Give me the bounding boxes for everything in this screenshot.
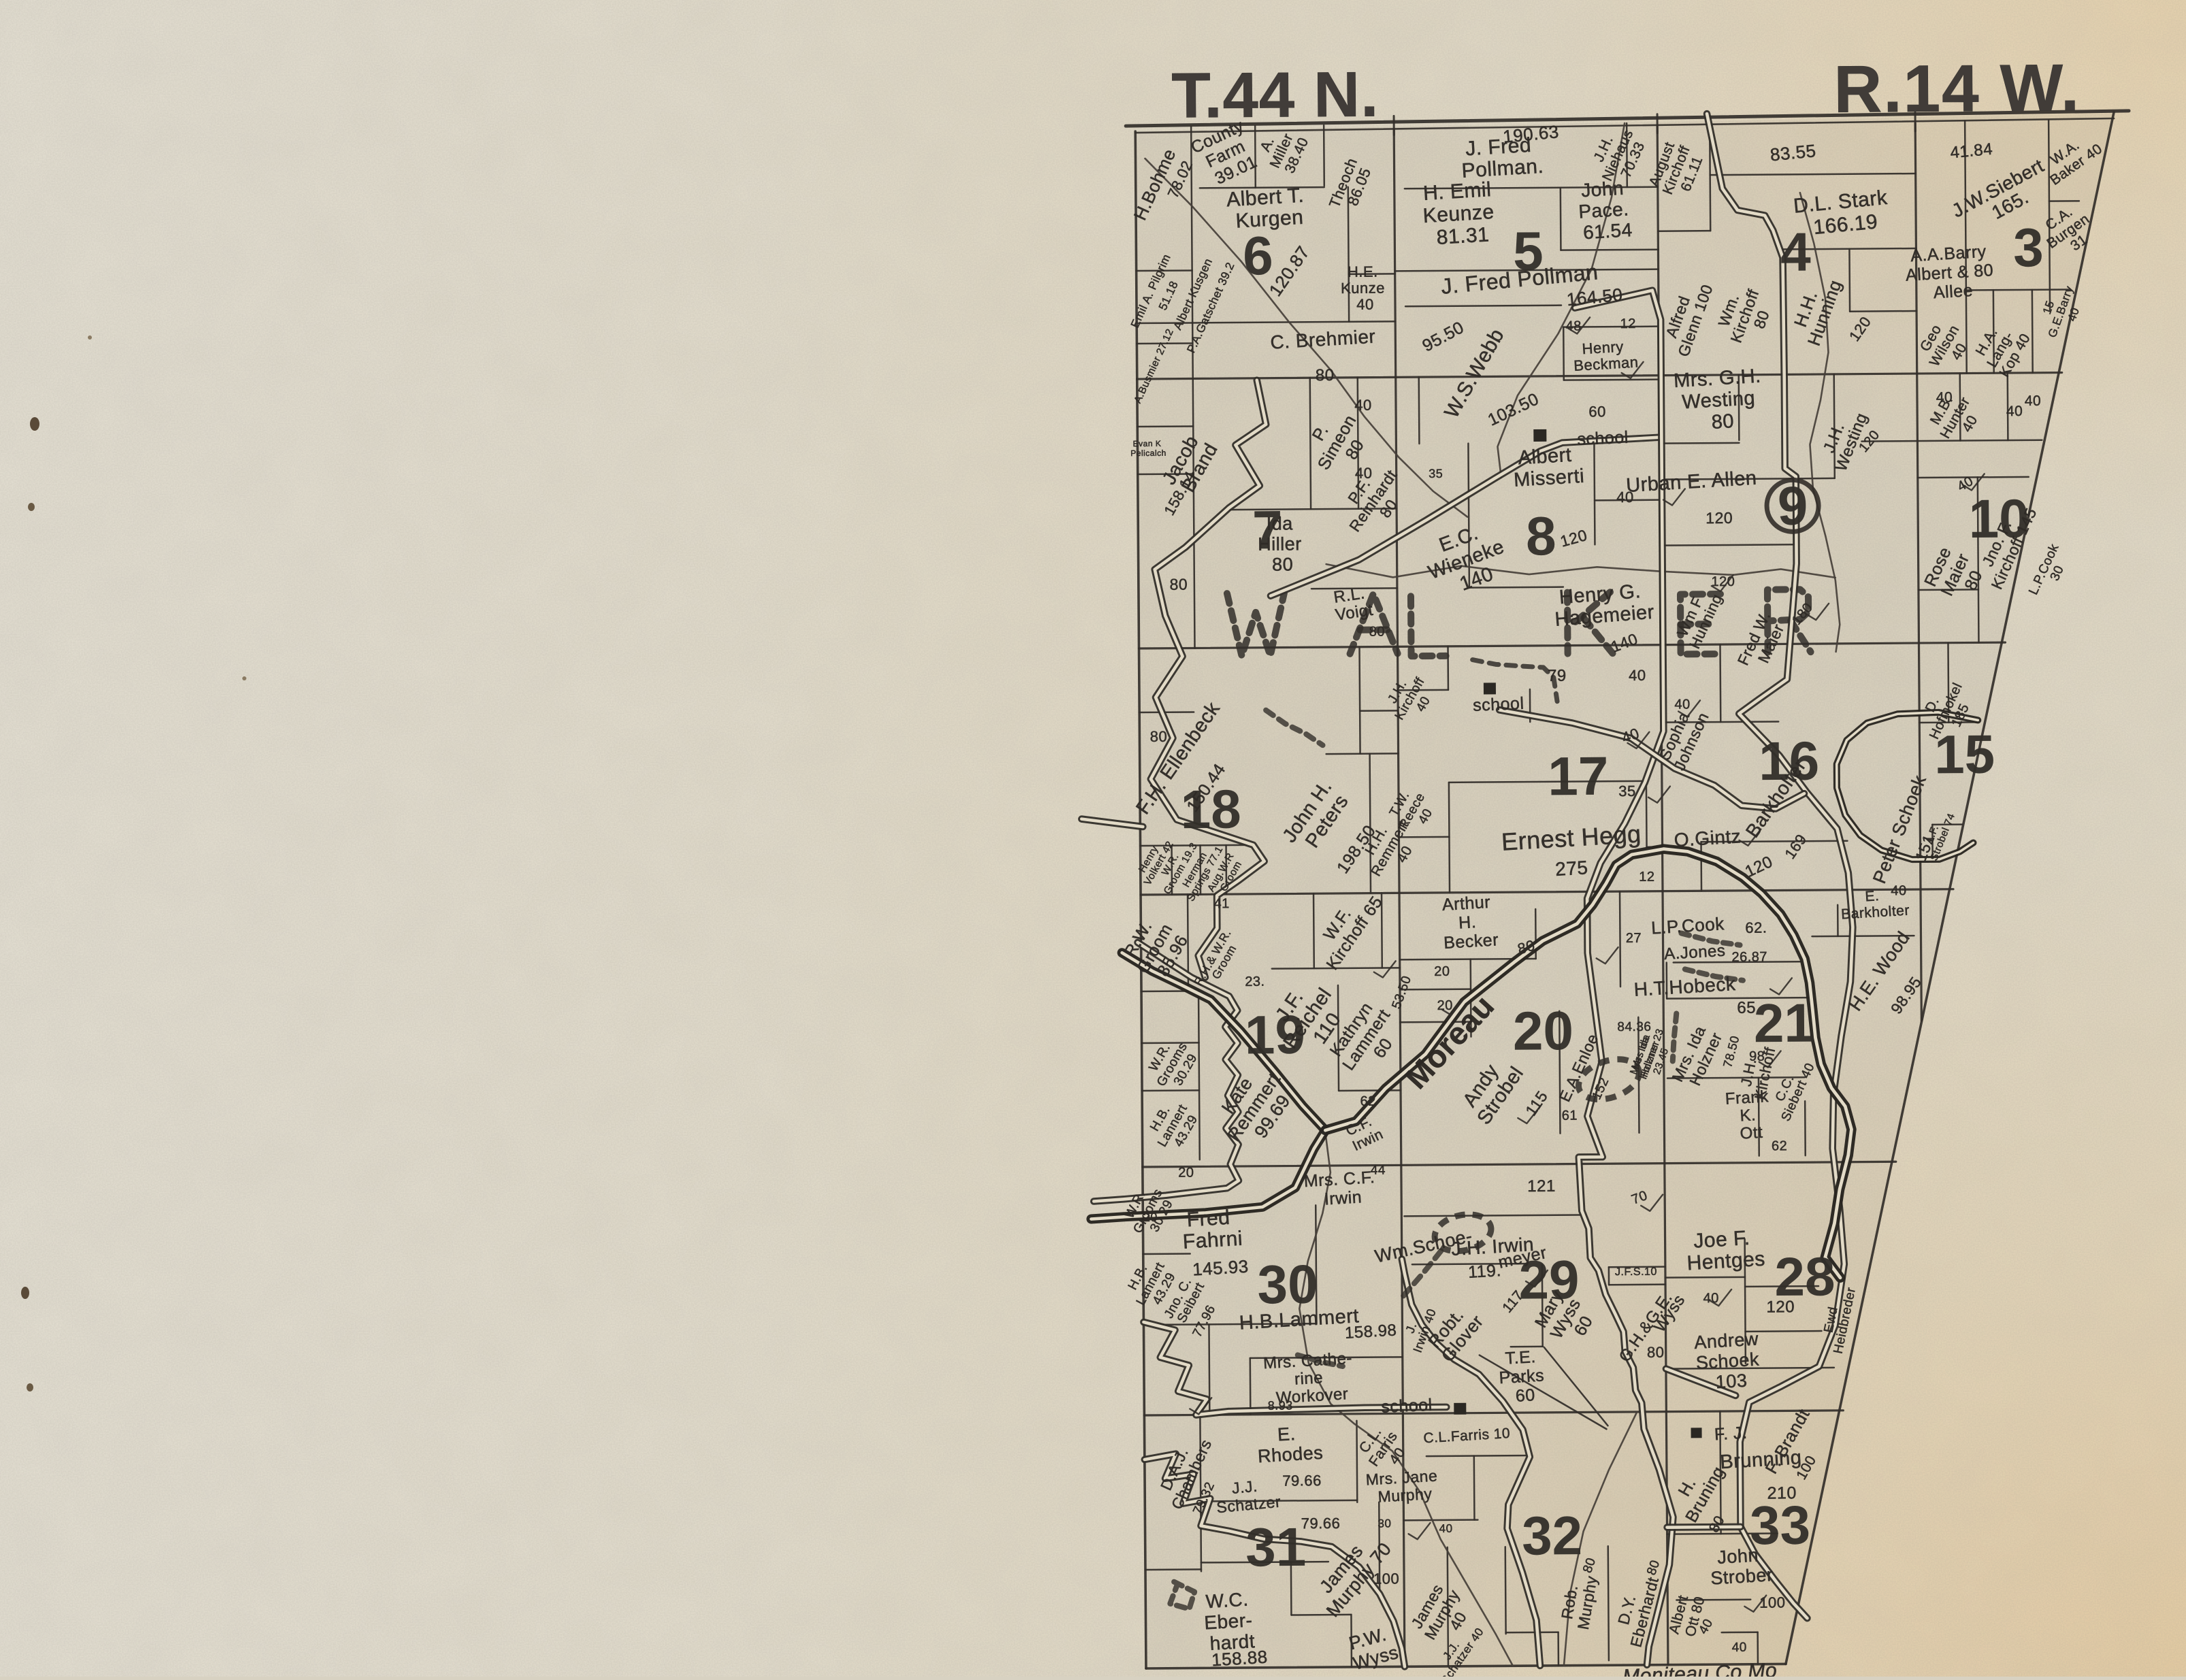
svg-text:158.88: 158.88 (1211, 1647, 1268, 1670)
svg-text:21: 21 (1754, 993, 1815, 1054)
svg-text:20: 20 (1143, 1210, 1158, 1224)
svg-text:school: school (1381, 1396, 1433, 1417)
svg-text:3: 3 (2013, 217, 2044, 278)
svg-text:275: 275 (1554, 857, 1588, 880)
svg-text:Albert T. Kurgen: Albert T. Kurgen (1226, 184, 1311, 233)
svg-text:80: 80 (1369, 625, 1385, 640)
svg-text:79.66: 79.66 (1282, 1472, 1322, 1489)
svg-text:119.: 119. (1467, 1261, 1501, 1282)
svg-text:23.: 23. (1245, 974, 1265, 989)
svg-text:60: 60 (1588, 403, 1606, 420)
svg-text:W.C. Eber- hardt: W.C. Eber- hardt (1203, 1588, 1260, 1655)
svg-text:R.L. Voigt: R.L. Voigt (1331, 583, 1374, 625)
svg-text:17: 17 (1548, 746, 1609, 807)
svg-text:20: 20 (1434, 964, 1450, 979)
svg-text:12: 12 (1620, 316, 1635, 331)
svg-text:100: 100 (1373, 1570, 1399, 1587)
svg-text:40: 40 (1616, 489, 1634, 506)
svg-text:62: 62 (1360, 1094, 1375, 1109)
svg-text:80: 80 (1169, 576, 1188, 593)
svg-text:F. J.: F. J. (1714, 1423, 1748, 1445)
svg-text:30: 30 (1257, 1254, 1318, 1315)
svg-text:158.98: 158.98 (1344, 1321, 1397, 1342)
svg-text:Evan K Pelicalch: Evan K Pelicalch (1130, 439, 1167, 458)
svg-text:120: 120 (1706, 509, 1733, 527)
svg-text:30: 30 (1377, 1517, 1391, 1530)
svg-text:R.14 W.: R.14 W. (1833, 50, 2081, 127)
svg-text:79.66: 79.66 (1301, 1515, 1341, 1532)
svg-text:40: 40 (1891, 883, 1906, 898)
svg-text:35: 35 (1618, 783, 1636, 800)
svg-text:O.Gintz: O.Gintz (1674, 825, 1742, 851)
svg-text:79: 79 (1548, 667, 1567, 685)
svg-text:Joe F. Hentges: Joe F. Hentges (1685, 1226, 1766, 1275)
svg-text:80: 80 (1150, 728, 1168, 745)
svg-text:80: 80 (1647, 1344, 1665, 1361)
svg-text:L.P.Cook: L.P.Cook (1650, 913, 1725, 938)
svg-text:27: 27 (1626, 931, 1642, 946)
svg-text:100: 100 (1759, 1594, 1785, 1611)
svg-text:8.93: 8.93 (1268, 1398, 1293, 1412)
svg-text:20: 20 (1437, 998, 1452, 1013)
svg-text:35: 35 (1429, 467, 1443, 480)
svg-text:62: 62 (1772, 1138, 1787, 1153)
svg-text:83.55: 83.55 (1769, 140, 1817, 165)
svg-text:J. Fred Pollman.: J. Fred Pollman. (1460, 133, 1544, 182)
svg-text:40: 40 (1439, 1522, 1453, 1535)
svg-text:40: 40 (1703, 1291, 1718, 1306)
svg-text:40: 40 (1674, 697, 1690, 712)
svg-text:80: 80 (1316, 366, 1335, 384)
svg-text:41: 41 (1213, 896, 1229, 911)
svg-text:Albert Misserti: Albert Misserti (1512, 444, 1585, 491)
svg-text:61: 61 (1562, 1108, 1578, 1123)
svg-text:6: 6 (1243, 225, 1273, 286)
svg-text:65: 65 (1737, 999, 1756, 1017)
svg-text:school: school (1577, 428, 1629, 449)
svg-text:40: 40 (2006, 403, 2023, 419)
svg-text:121: 121 (1527, 1177, 1556, 1196)
svg-text:Henry G. Hagemeier: Henry G. Hagemeier (1552, 580, 1655, 631)
svg-text:31: 31 (1245, 1517, 1307, 1578)
svg-text:44: 44 (1371, 1164, 1386, 1178)
svg-text:school: school (1473, 694, 1524, 715)
svg-text:John Pace. 61.54: John Pace. 61.54 (1577, 177, 1637, 244)
svg-text:40: 40 (2025, 393, 2042, 409)
svg-text:J.F.S.10: J.F.S.10 (1615, 1266, 1657, 1278)
svg-text:120: 120 (1711, 574, 1735, 589)
svg-text:20: 20 (1178, 1165, 1194, 1180)
svg-text:8: 8 (1526, 506, 1556, 566)
svg-text:210: 210 (1767, 1483, 1796, 1502)
svg-text:40: 40 (1629, 667, 1646, 684)
svg-text:26.87: 26.87 (1731, 950, 1767, 965)
svg-text:T.44 N.: T.44 N. (1171, 59, 1380, 131)
svg-text:62.: 62. (1745, 919, 1767, 936)
svg-text:145.93: 145.93 (1192, 1256, 1249, 1280)
svg-text:20: 20 (1513, 1000, 1574, 1061)
svg-text:48: 48 (1566, 318, 1582, 333)
svg-text:40: 40 (1354, 397, 1372, 414)
svg-text:4: 4 (1780, 222, 1812, 282)
svg-text:32: 32 (1522, 1505, 1583, 1566)
svg-text:120: 120 (1766, 1298, 1795, 1316)
svg-text:12: 12 (1639, 870, 1654, 885)
svg-text:40: 40 (1732, 1641, 1747, 1655)
svg-text:Fred Fahrni: Fred Fahrni (1181, 1206, 1243, 1253)
svg-text:A.Jones: A.Jones (1663, 942, 1726, 963)
